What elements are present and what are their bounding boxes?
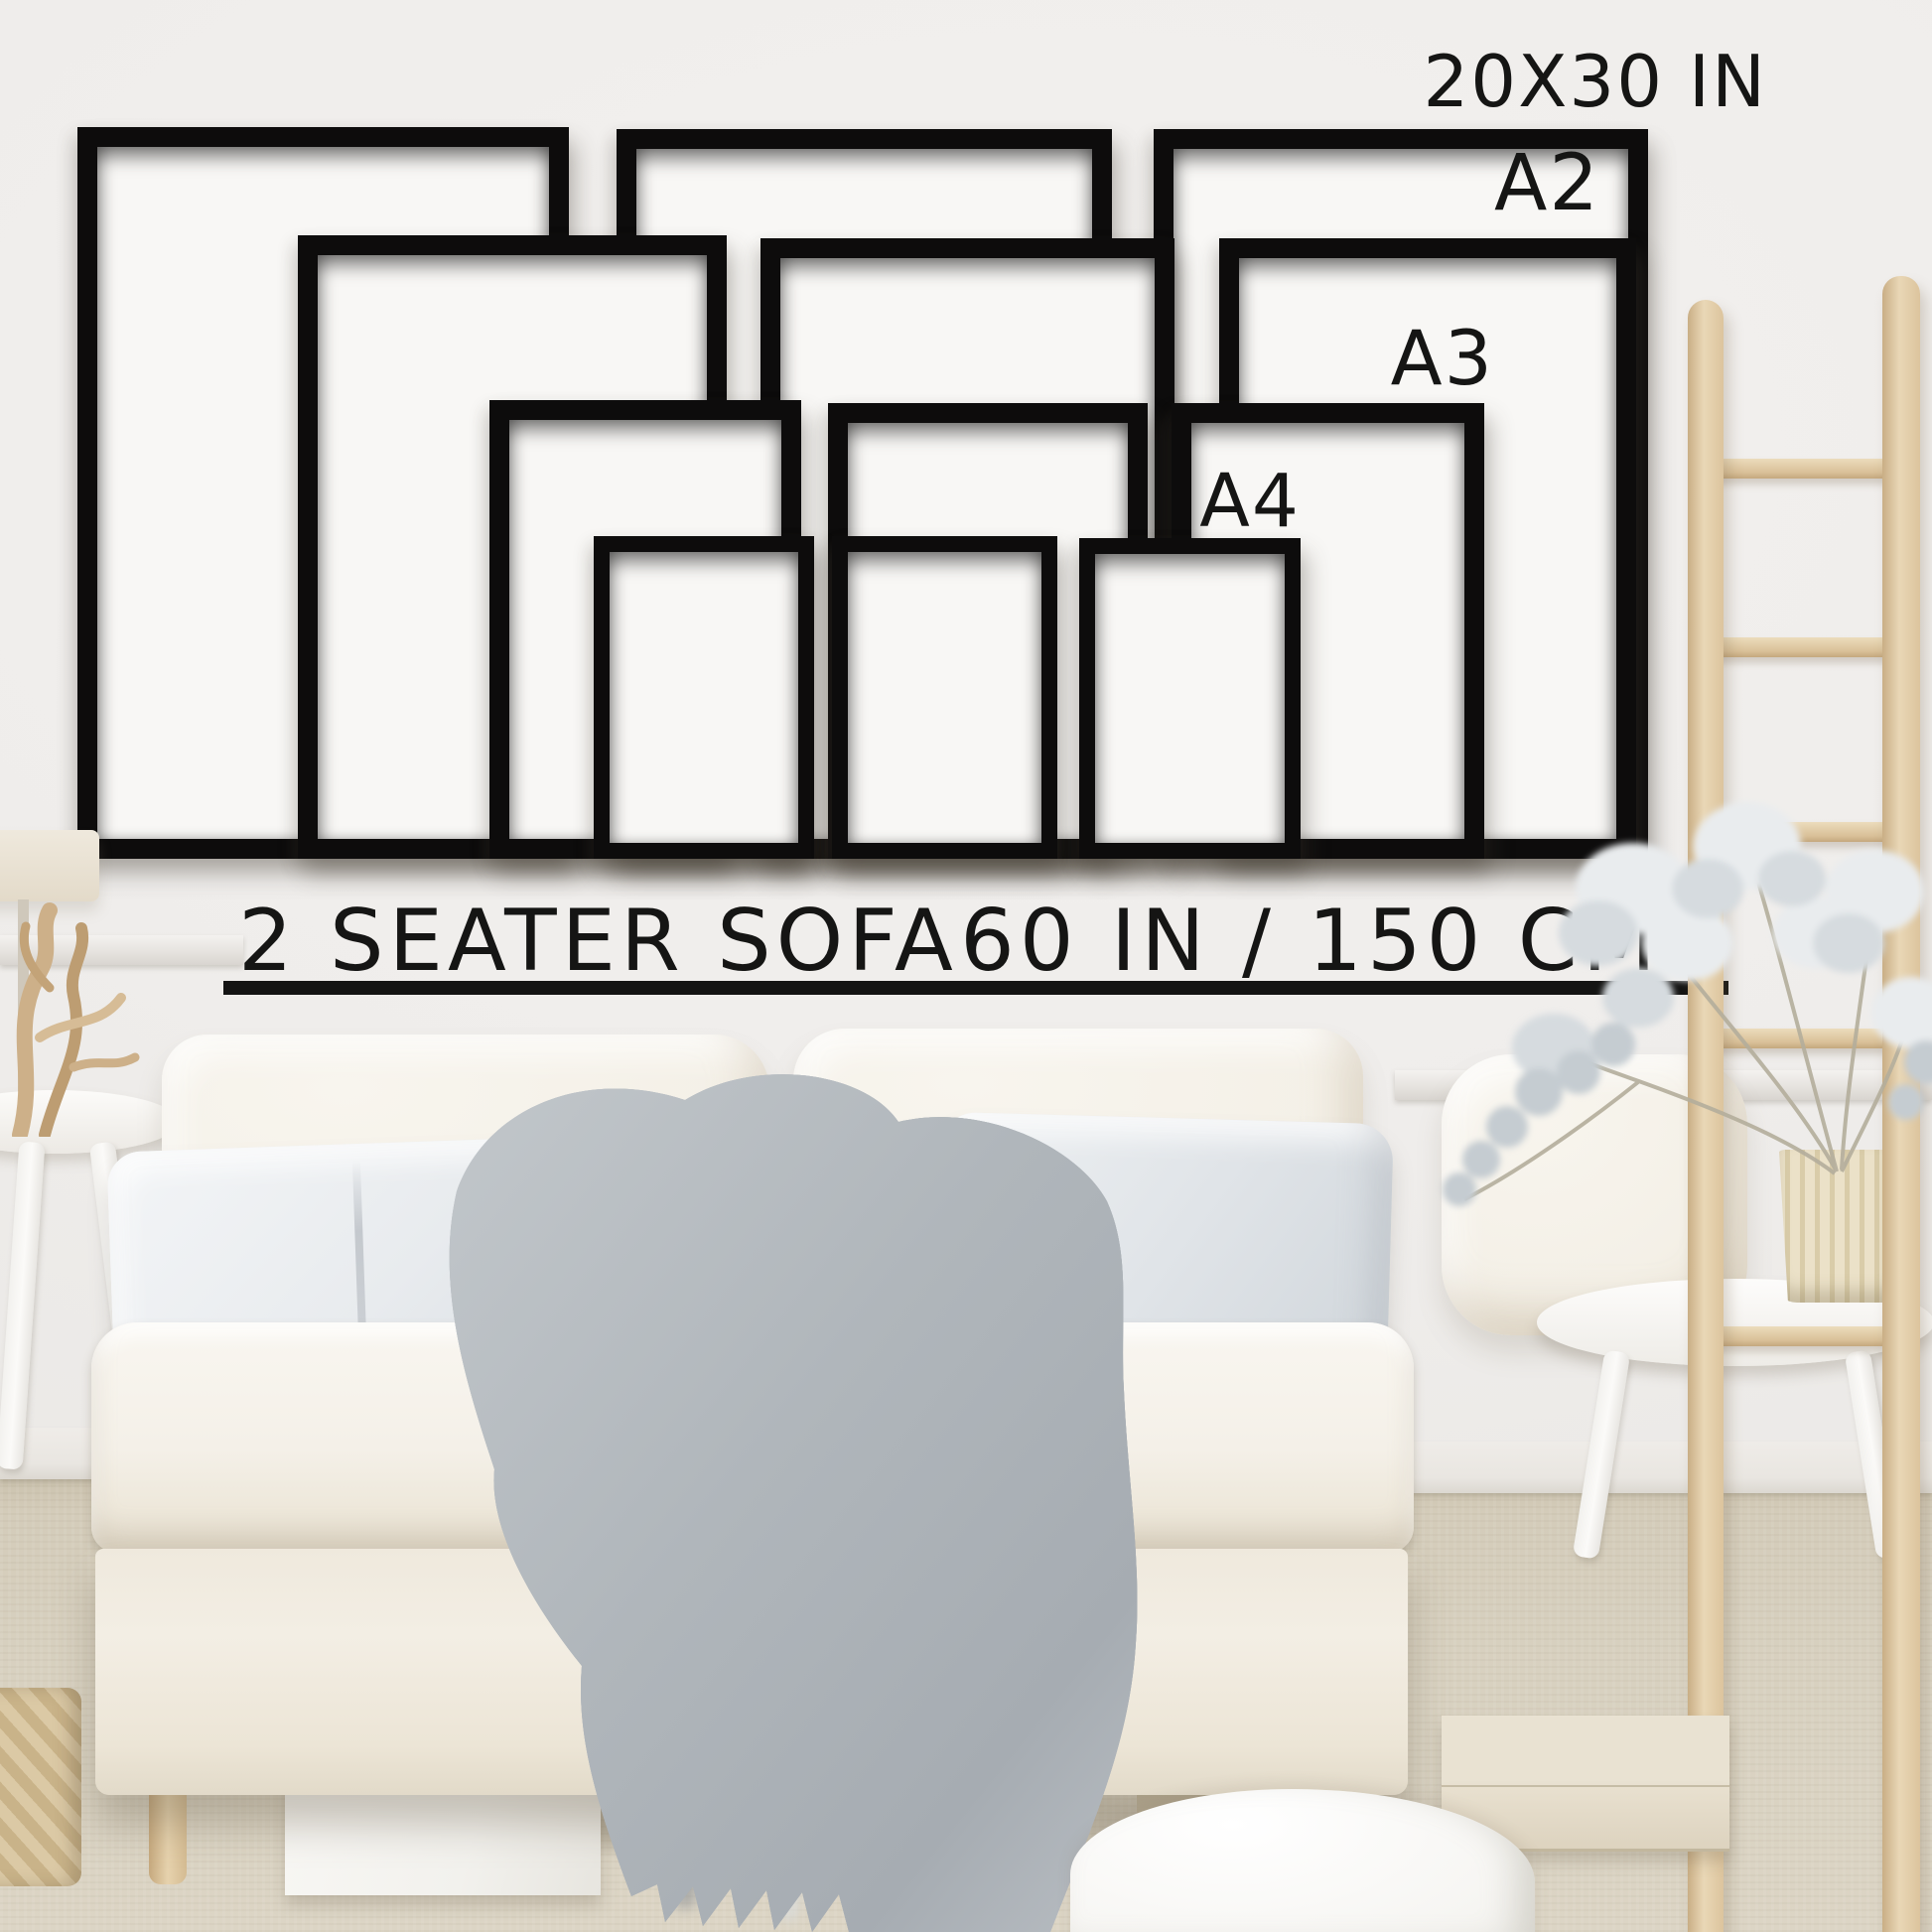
ladder-rung xyxy=(1700,1326,1900,1346)
size-label-a4: A4 xyxy=(1199,459,1301,544)
picture-frame-a4-2 xyxy=(832,536,1057,859)
wicker-basket xyxy=(0,1688,81,1886)
ladder-rung xyxy=(1700,459,1900,479)
picture-frame-a4-3 xyxy=(1079,538,1301,859)
size-guide-mockup-image: 20X30 IN A2 A3 A4 2 SEATER SOFA 60 IN / … xyxy=(0,0,1932,1932)
picture-frame-a4-1 xyxy=(594,536,814,859)
size-label-20x30: 20X30 IN xyxy=(1423,40,1767,123)
frame-mat xyxy=(610,552,798,843)
size-label-a2: A2 xyxy=(1494,139,1600,228)
ladder-rung xyxy=(1700,637,1900,657)
driftwood-decor xyxy=(0,898,169,1137)
sofa-leg xyxy=(149,1793,187,1884)
frame-mat xyxy=(1095,554,1285,843)
eucalyptus-plant xyxy=(1390,784,1932,1251)
sofa-size-caption: 2 SEATER SOFA xyxy=(238,892,958,991)
table-lamp-shade xyxy=(0,830,99,901)
knit-throw-blanket xyxy=(338,1052,1162,1932)
storage-box-right-top xyxy=(1442,1716,1729,1788)
baseboard-right xyxy=(1390,1442,1932,1493)
size-label-a3: A3 xyxy=(1391,314,1494,402)
frame-mat xyxy=(848,552,1041,843)
